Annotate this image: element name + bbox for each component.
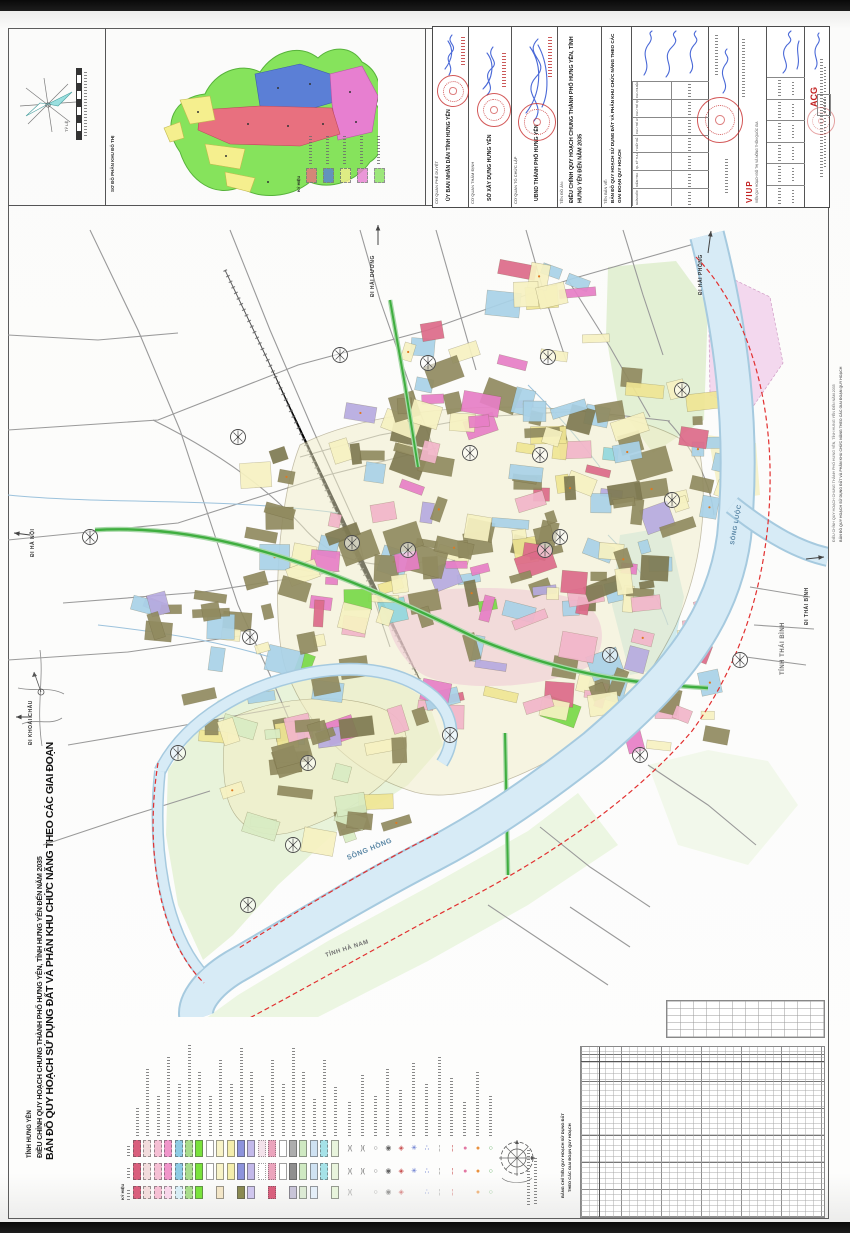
scale-bar [76,68,82,140]
edge-drawing-text: BẢN ĐỒ QUY HOẠCH SỬ DỤNG ĐẤT VÀ PHÂN KHU… [839,182,843,542]
inset-legend-swatch [340,168,351,183]
legend-row-label [127,1188,130,1200]
org-label: CƠ QUAN PHÊ DUYỆT [434,124,439,204]
legend-swatch [185,1140,193,1157]
org-label: CƠ QUAN THẨM ĐỊNH [470,124,475,204]
legend-swatch [310,1186,318,1199]
viup-logo: VIUP [745,153,754,203]
drawing-name-cell: TÊN BẢN VẼ: BẢN ĐỒ QUY HOẠCH SỬ DỤNG ĐẤT… [602,27,632,207]
map-label: ĐI KHOÁI CHÂU [27,700,34,745]
inset-legend-label [326,134,329,164]
emblem-caption [527,1150,530,1205]
project-name: ĐIỀU CHỈNH QUY HOẠCH CHUNG THÀNH PHỐ HƯN… [568,31,594,203]
legend-swatch [237,1140,245,1157]
interchange-spiral-icon: ◉ [383,1186,393,1199]
inset-legend-header: KÝ HIỆU [296,152,301,192]
gray-dash-line-icon: ¦ [435,1163,445,1180]
inset-legend-label [309,134,312,164]
table-title-line1: BẢNG CHỈ TIÊU QUY HOẠCH SỬ DỤNG ĐẤT [560,1086,565,1198]
parallel-bridge-icon: )( [345,1163,355,1180]
legend-item-label [188,1045,191,1136]
personnel-cell-entry: GIÁM ĐỐC [632,188,671,206]
personnel-cell-entry [671,188,710,206]
interchange-spiral-icon: ◉ [383,1163,393,1180]
legend-swatch [331,1186,339,1199]
legend-item-label [271,1059,274,1136]
summary-table-small [666,1000,825,1038]
inset-legend-swatch [323,168,334,183]
map-label: ĐI HẢI PHÒNG [696,254,704,295]
personnel-grid: CHỦ NHIỆMCHỦ TRÌ QHCHỦ TRÌ HTTHIẾT KẾQL … [632,81,709,206]
legend-row-label [127,1144,130,1156]
legend-swatch [154,1163,162,1180]
approval-org-cell: CƠ QUAN PHÊ DUYỆT ỦY BAN NHÂN DÂN TỈNH H… [433,27,469,207]
legend-swatch [310,1163,318,1180]
inset-title: SƠ ĐỒ PHÂN KHU ĐÔ THỊ [110,52,115,192]
legend-item-label [230,1083,233,1136]
red-dash-line-icon: ¦ [447,1140,457,1157]
consultant-cell: VIUP VIỆN QUY HOẠCH ĐÔ THỊ VÀ NÔNG THÔN … [739,27,767,207]
legend-swatch [310,1140,318,1157]
drawing-name: BẢN ĐỒ QUY HOẠCH SỬ DỤNG ĐẤT VÀ PHÂN KHU… [610,31,628,203]
project-label: TÊN ĐỒ ÁN: [559,164,564,204]
blue-nodes-icon: ∴ [422,1186,432,1199]
sheet-number-box [817,94,831,116]
legend-swatch [268,1140,276,1157]
personnel-cell-entry [767,163,805,185]
legend-swatch [299,1163,307,1180]
signature-icon [807,31,827,71]
table-title-line2: THEO CÁC GIAI ĐOẠN QUY HOẠCH [567,1096,572,1192]
inset-legend-swatch [306,168,317,183]
legend-swatch [247,1163,255,1180]
personnel-cell-entry: THIẾT KẾ [632,135,671,153]
legend-item-label [313,1097,316,1136]
personnel-cell-entry [767,77,805,99]
legend-item-label [250,1071,253,1136]
legend-item-label [463,1101,466,1136]
red-stamp-icon [476,91,513,128]
signature-icon [475,45,505,97]
legend-swatch [154,1140,162,1157]
legend-item-label [282,1084,285,1136]
blue-nodes-icon: ∴ [422,1163,432,1180]
legend-swatch [279,1140,287,1157]
legend-swatch [164,1163,172,1180]
legend-swatch [227,1163,235,1180]
legend-swatch [164,1140,172,1157]
red-dash-line-icon: ¦ [447,1186,457,1199]
legend-swatch [133,1186,141,1199]
legend-swatch [237,1186,245,1199]
legend-item-label [209,1095,212,1136]
legend-item-label [146,1069,149,1136]
legend-item-label [261,1096,264,1136]
parallel-bridge-icon: )( [358,1140,368,1157]
legend-swatch [279,1163,287,1180]
station-diamond-icon: ◈ [396,1163,406,1180]
legend-item-label [399,1090,402,1136]
legend-swatch [143,1140,151,1157]
title-block: CƠ QUAN PHÊ DUYỆT ỦY BAN NHÂN DÂN TỈNH H… [432,26,830,208]
legend-item-label [323,1060,326,1136]
personnel-cell-entry [671,135,710,153]
map-label: ĐI HẢI DƯƠNG [369,255,376,297]
legend-item-label [167,1057,170,1136]
signature-icon [435,31,465,77]
legend-swatch [331,1140,339,1157]
appraisal-org-cell: CƠ QUAN THẨM ĐỊNH SỞ XÂY DỰNG HƯNG YÊN [469,27,511,207]
personnel-cell-entry [671,81,710,99]
map-label: ĐI HÀ NỘI [28,529,36,558]
gray-dash-line-icon: ¦ [435,1186,445,1199]
compass-icon [14,66,84,146]
legend-swatch [133,1140,141,1157]
legend-swatch [289,1140,297,1157]
scale-numbers [84,70,87,136]
bottom-dark-bar [0,1222,850,1233]
viup-name: VIỆN QUY HOẠCH ĐÔ THỊ VÀ NÔNG THÔN QUỐC … [755,31,763,203]
legend-item-label [438,1055,441,1136]
personnel-cell-entry [767,120,805,142]
map-label: TỈNH THÁI BÌNH [778,622,786,675]
scale-label: TỶ LỆ [64,76,69,132]
scanned-planning-map-page: TỶ LỆ SƠ ĐỒ PHÂN KHU ĐÔ THỊ KÝ HIỆU CƠ Q… [0,0,850,1233]
personnel-cell-entry [671,152,710,170]
legend-swatch [195,1140,203,1157]
legend-item-label [386,1067,389,1136]
partner-cell: ACG [805,27,829,207]
top-dark-bar [0,0,850,11]
legend-item-label [334,1085,337,1136]
legend-item-label [361,1073,364,1136]
personnel-cell-entry: QL KỸ THUẬT [632,152,671,170]
small-circle-icon: ○ [371,1140,381,1157]
inset-legend [306,150,396,200]
legend-swatch [133,1163,141,1180]
legend-item-label [157,1094,160,1136]
legend-item-label [425,1084,428,1136]
red-stamp-icon [435,73,471,109]
inset-legend-swatch [374,168,385,183]
legend-item-label [198,1070,201,1136]
gray-dash-line-icon: ¦ [435,1140,445,1157]
station-diamond-icon: ◈ [396,1186,406,1199]
legend-swatch [320,1140,328,1157]
legend-swatch [258,1163,266,1180]
legend-item-label [136,1106,139,1136]
parallel-bridge-icon: )( [358,1163,368,1180]
legend-swatch [143,1163,151,1180]
personnel-cell-entry [767,99,805,121]
personnel-grid [767,77,805,206]
interchange-spiral-icon: ◉ [383,1140,393,1157]
legend-swatch [175,1163,183,1180]
personnel-cell-entry: CHỦ TRÌ HT [632,117,671,135]
legend-swatch [247,1140,255,1157]
legend-item-label [412,1061,415,1136]
station-diamond-icon: ◈ [396,1140,406,1157]
parallel-bridge-icon: )( [345,1186,355,1199]
legend-swatch [164,1186,172,1199]
legend-swatch [237,1163,245,1180]
legend-swatch [143,1186,151,1199]
pink-node-icon: ● [460,1163,470,1180]
blue-nodes-icon: ∴ [422,1140,432,1157]
personnel-cell-entry: CHỦ NHIỆM [632,81,671,99]
legend-swatch [185,1186,193,1199]
signature-icon [771,29,803,75]
legend-item-label [450,1078,453,1136]
legend-swatch [195,1186,203,1199]
legend-swatch [154,1186,162,1199]
blue-junction-icon: ✳ [409,1163,419,1180]
project-name-cell: TÊN ĐỒ ÁN: ĐIỀU CHỈNH QUY HOẠCH CHUNG TH… [558,27,602,207]
legend-swatch [175,1140,183,1157]
legend-header: KÝ HIỆU [120,1142,125,1200]
org-label: CƠ QUAN TỔ CHỨC LẬP [513,114,518,204]
emblem-caption [534,1158,537,1204]
personnel-cell-entry [767,185,805,207]
main-map: SÔNG HỒNGSÔNG LUỘCTỈNH HÀ NAMTỈNH THÁI B… [8,205,828,1017]
small-circle-icon: ○ [371,1163,381,1180]
legend-swatch [331,1163,339,1180]
landuse-indicator-table [580,1046,825,1218]
orange-node-icon: ● [473,1163,483,1180]
legend-swatch [320,1163,328,1180]
legend-swatch [299,1140,307,1157]
province-title: TỈNH HƯNG YÊN [27,1096,33,1158]
orange-node-icon: ● [473,1186,483,1199]
legend-swatch [247,1186,255,1199]
frame-divider [425,28,426,206]
personnel-cell-entry: CHỦ TRÌ QH [632,99,671,117]
legend-item-label [348,1102,351,1136]
legend-item-label [292,1047,295,1136]
edge-project-text: ĐIỀU CHỈNH QUY HOẠCH CHUNG THÀNH PHỐ HƯN… [832,182,836,542]
legend-swatch [185,1163,193,1180]
organizing-org-cell: CƠ QUAN TỔ CHỨC LẬP UBND THÀNH PHỐ HƯNG … [512,27,558,207]
signature-icon [713,47,737,95]
blue-junction-icon: ✳ [409,1140,419,1157]
legend-swatch [268,1163,276,1180]
legend-item-label [178,1082,181,1136]
signature-icon [634,29,706,79]
legend-swatch [216,1140,224,1157]
legend-row-label [127,1166,130,1178]
legend-swatch [289,1186,297,1199]
micro-text [742,37,745,97]
red-dash-line-icon: ¦ [447,1163,457,1180]
legend-swatch [175,1186,183,1199]
legend-item-label [302,1072,305,1136]
seal-cell [709,27,740,207]
legend-swatch [268,1186,276,1199]
parallel-bridge-icon: )( [345,1140,355,1157]
legend-swatch [289,1163,297,1180]
legend-swatch [299,1186,307,1199]
legend-swatch [206,1140,214,1157]
legend-item-label [240,1046,243,1136]
inset-legend-label [360,134,363,164]
inset-legend-label [377,134,380,164]
orange-node-icon: ● [473,1140,483,1157]
frame-divider [105,28,106,206]
legend-swatch [216,1186,224,1199]
consultant-roles-cell [767,27,805,207]
inset-legend-label [343,134,346,164]
personnel-cell-entry [767,142,805,164]
drawing-label: TÊN BẢN VẼ: [603,164,608,204]
legend-item-label [476,1072,479,1136]
personnel-cell-entry: KIỂM TRA [632,170,671,188]
legend-swatch [258,1140,266,1157]
inset-legend-swatch [357,168,368,183]
legend-swatch [216,1163,224,1180]
map-label: ĐI THÁI BÌNH [802,587,810,625]
personnel-cell-entry [671,170,710,188]
small-circle-icon: ○ [371,1186,381,1199]
legend-item-label [219,1058,222,1136]
legend-swatch [227,1140,235,1157]
legend-swatch [195,1163,203,1180]
pink-node-icon: ● [460,1140,470,1157]
legend-swatch [206,1163,214,1180]
legend-item-label [489,1095,492,1136]
micro-text [725,157,728,193]
legend-item-label [374,1096,377,1136]
